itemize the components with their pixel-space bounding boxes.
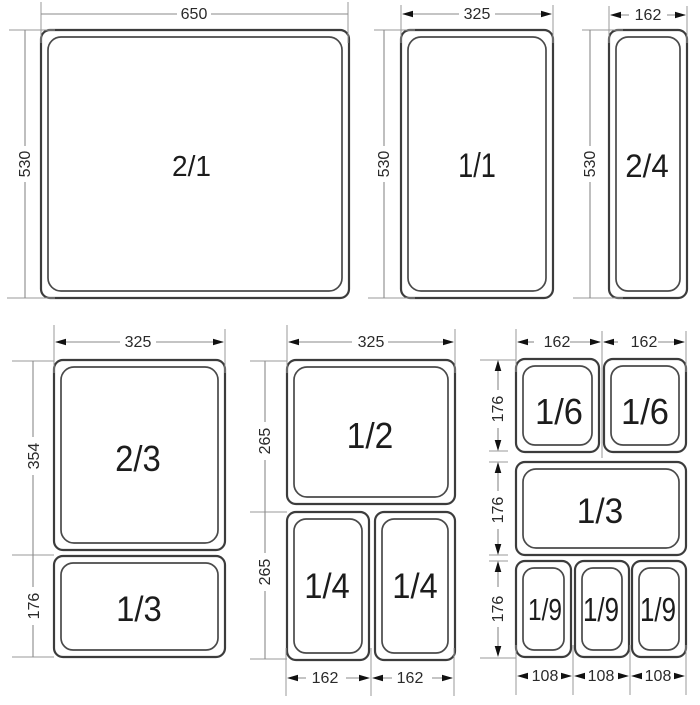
svg-text:325: 325 [125, 334, 152, 351]
svg-text:162: 162 [397, 670, 424, 687]
svg-text:1/3: 1/3 [577, 492, 624, 531]
svg-text:1/6: 1/6 [535, 391, 583, 432]
svg-text:162: 162 [635, 7, 662, 24]
svg-text:530: 530 [582, 151, 599, 178]
svg-text:2/3: 2/3 [115, 438, 161, 479]
svg-text:325: 325 [464, 6, 491, 23]
svg-text:1/3: 1/3 [116, 590, 162, 629]
svg-text:265: 265 [257, 428, 274, 455]
svg-text:162: 162 [312, 670, 339, 687]
svg-text:1/2: 1/2 [347, 415, 394, 456]
svg-text:162: 162 [631, 334, 658, 351]
svg-text:176: 176 [26, 593, 43, 620]
svg-text:1/6: 1/6 [621, 391, 669, 432]
svg-text:530: 530 [376, 151, 393, 178]
svg-text:1/4: 1/4 [304, 567, 350, 606]
svg-text:176: 176 [490, 396, 507, 423]
svg-text:2/1: 2/1 [172, 151, 211, 183]
svg-text:1/9: 1/9 [640, 591, 676, 628]
svg-text:1/9: 1/9 [528, 592, 562, 627]
svg-text:176: 176 [490, 596, 507, 623]
svg-text:354: 354 [26, 443, 43, 470]
svg-text:325: 325 [358, 334, 385, 351]
svg-text:108: 108 [532, 668, 559, 685]
svg-text:1/4: 1/4 [392, 567, 438, 606]
svg-text:265: 265 [257, 559, 274, 586]
svg-text:2/4: 2/4 [625, 148, 668, 184]
svg-text:1/9: 1/9 [583, 591, 619, 628]
svg-text:650: 650 [181, 6, 208, 23]
svg-text:530: 530 [17, 151, 34, 178]
svg-text:162: 162 [544, 334, 571, 351]
svg-text:108: 108 [645, 668, 672, 685]
svg-text:1/1: 1/1 [458, 147, 496, 185]
svg-text:176: 176 [490, 497, 507, 524]
svg-text:108: 108 [588, 668, 615, 685]
